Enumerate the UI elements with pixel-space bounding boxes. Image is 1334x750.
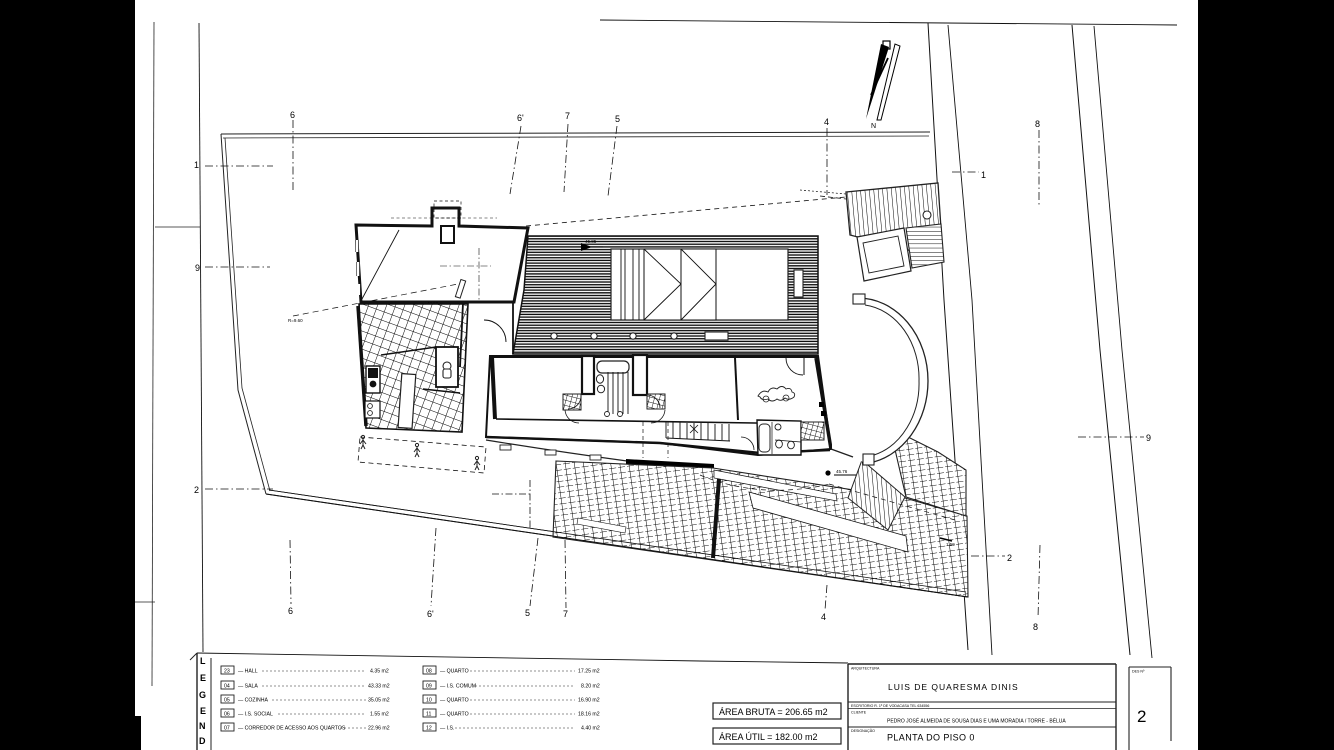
svg-text:5: 5: [525, 608, 530, 618]
svg-text:8: 8: [1033, 622, 1038, 632]
svg-text:6': 6': [427, 609, 434, 619]
svg-text:12: 12: [426, 726, 432, 732]
svg-text:05: 05: [224, 698, 230, 704]
svg-text:45.76: 45.76: [836, 469, 848, 474]
svg-text:— I.S. SOCIAL: — I.S. SOCIAL: [238, 712, 273, 718]
svg-text:ARQUITECTURA: ARQUITECTURA: [851, 667, 880, 671]
svg-text:45.85: 45.85: [585, 239, 597, 244]
svg-text:4: 4: [824, 117, 829, 127]
svg-text:10: 10: [426, 698, 432, 704]
svg-text:11: 11: [426, 712, 431, 718]
svg-text:DES Nº: DES Nº: [1132, 670, 1145, 674]
svg-text:E: E: [200, 673, 206, 683]
svg-text:06: 06: [224, 712, 230, 718]
svg-text:9: 9: [1146, 433, 1151, 443]
svg-text:6': 6': [517, 113, 524, 123]
svg-text:LUIS DE QUARESMA DINIS: LUIS DE QUARESMA DINIS: [888, 682, 1019, 692]
svg-text:N: N: [199, 721, 206, 731]
svg-text:23: 23: [224, 669, 230, 675]
svg-text:7: 7: [563, 609, 568, 619]
svg-text:R=9.60: R=9.60: [288, 318, 303, 323]
svg-text:— COZINHA: — COZINHA: [238, 698, 269, 704]
svg-text:N: N: [871, 123, 876, 130]
svg-text:09: 09: [426, 684, 432, 690]
svg-text:2: 2: [194, 485, 199, 495]
svg-text:1.59: 1.59: [946, 542, 955, 547]
svg-text:— I.S. COMUM: — I.S. COMUM: [440, 684, 476, 690]
svg-text:D: D: [199, 736, 206, 746]
svg-text:PLANTA DO PISO 0: PLANTA DO PISO 0: [887, 733, 975, 743]
svg-text:2: 2: [1137, 707, 1146, 726]
svg-text:— QUARTO: — QUARTO: [440, 712, 469, 718]
svg-text:— CORREDOR DE ACESSO AOS QUART: — CORREDOR DE ACESSO AOS QUARTOS: [238, 726, 346, 732]
svg-text:1.55 m2: 1.55 m2: [370, 712, 389, 718]
svg-text:7: 7: [565, 111, 570, 121]
svg-text:G: G: [199, 690, 206, 700]
svg-text:ESCRITORIO R. 1º DE VODACASA: ESCRITORIO R. 1º DE VODACASA TEL 634556: [851, 704, 929, 708]
svg-text:22.96 m2: 22.96 m2: [368, 726, 390, 732]
svg-text:1: 1: [194, 160, 199, 170]
svg-text:— QUARTO: — QUARTO: [440, 698, 469, 704]
svg-text:2: 2: [1007, 553, 1012, 563]
svg-text:9: 9: [195, 263, 200, 273]
svg-text:— SALA: — SALA: [238, 684, 258, 690]
svg-text:6: 6: [290, 110, 295, 120]
svg-text:6: 6: [288, 606, 293, 616]
svg-text:08: 08: [426, 669, 432, 675]
svg-text:ÁREA ÚTIL = 182.00 m2: ÁREA ÚTIL = 182.00 m2: [719, 732, 817, 742]
svg-text:1: 1: [981, 170, 986, 180]
svg-text:8.20 m2: 8.20 m2: [581, 684, 600, 690]
svg-text:35.05 m2: 35.05 m2: [368, 698, 390, 704]
svg-text:L: L: [200, 656, 206, 666]
svg-text:07: 07: [224, 726, 230, 732]
svg-text:18.16 m2: 18.16 m2: [578, 712, 600, 718]
svg-text:16.90 m2: 16.90 m2: [578, 698, 600, 704]
svg-text:— HALL: — HALL: [238, 669, 258, 675]
svg-text:— I.S.: — I.S.: [440, 726, 454, 732]
svg-text:17.25 m2: 17.25 m2: [578, 669, 600, 675]
svg-text:PEDRO JOSÉ ALMEIDA DE SOUSA DI: PEDRO JOSÉ ALMEIDA DE SOUSA DIAS E UMA M…: [887, 718, 1066, 725]
svg-text:4.35 m2: 4.35 m2: [370, 669, 389, 675]
svg-text:DESIGNAÇÃO: DESIGNAÇÃO: [851, 728, 875, 733]
svg-text:E: E: [200, 706, 206, 716]
svg-text:43.33 m2: 43.33 m2: [368, 684, 390, 690]
svg-text:5: 5: [615, 114, 620, 124]
svg-text:4: 4: [821, 612, 826, 622]
svg-text:— QUARTO: — QUARTO: [440, 669, 469, 675]
svg-text:CLIENTE: CLIENTE: [851, 711, 867, 715]
svg-text:4.40 m2: 4.40 m2: [581, 726, 600, 732]
svg-text:8: 8: [1035, 119, 1040, 129]
svg-text:ÁREA BRUTA = 206.65 m2: ÁREA BRUTA = 206.65 m2: [719, 707, 828, 717]
svg-text:04: 04: [224, 684, 230, 690]
